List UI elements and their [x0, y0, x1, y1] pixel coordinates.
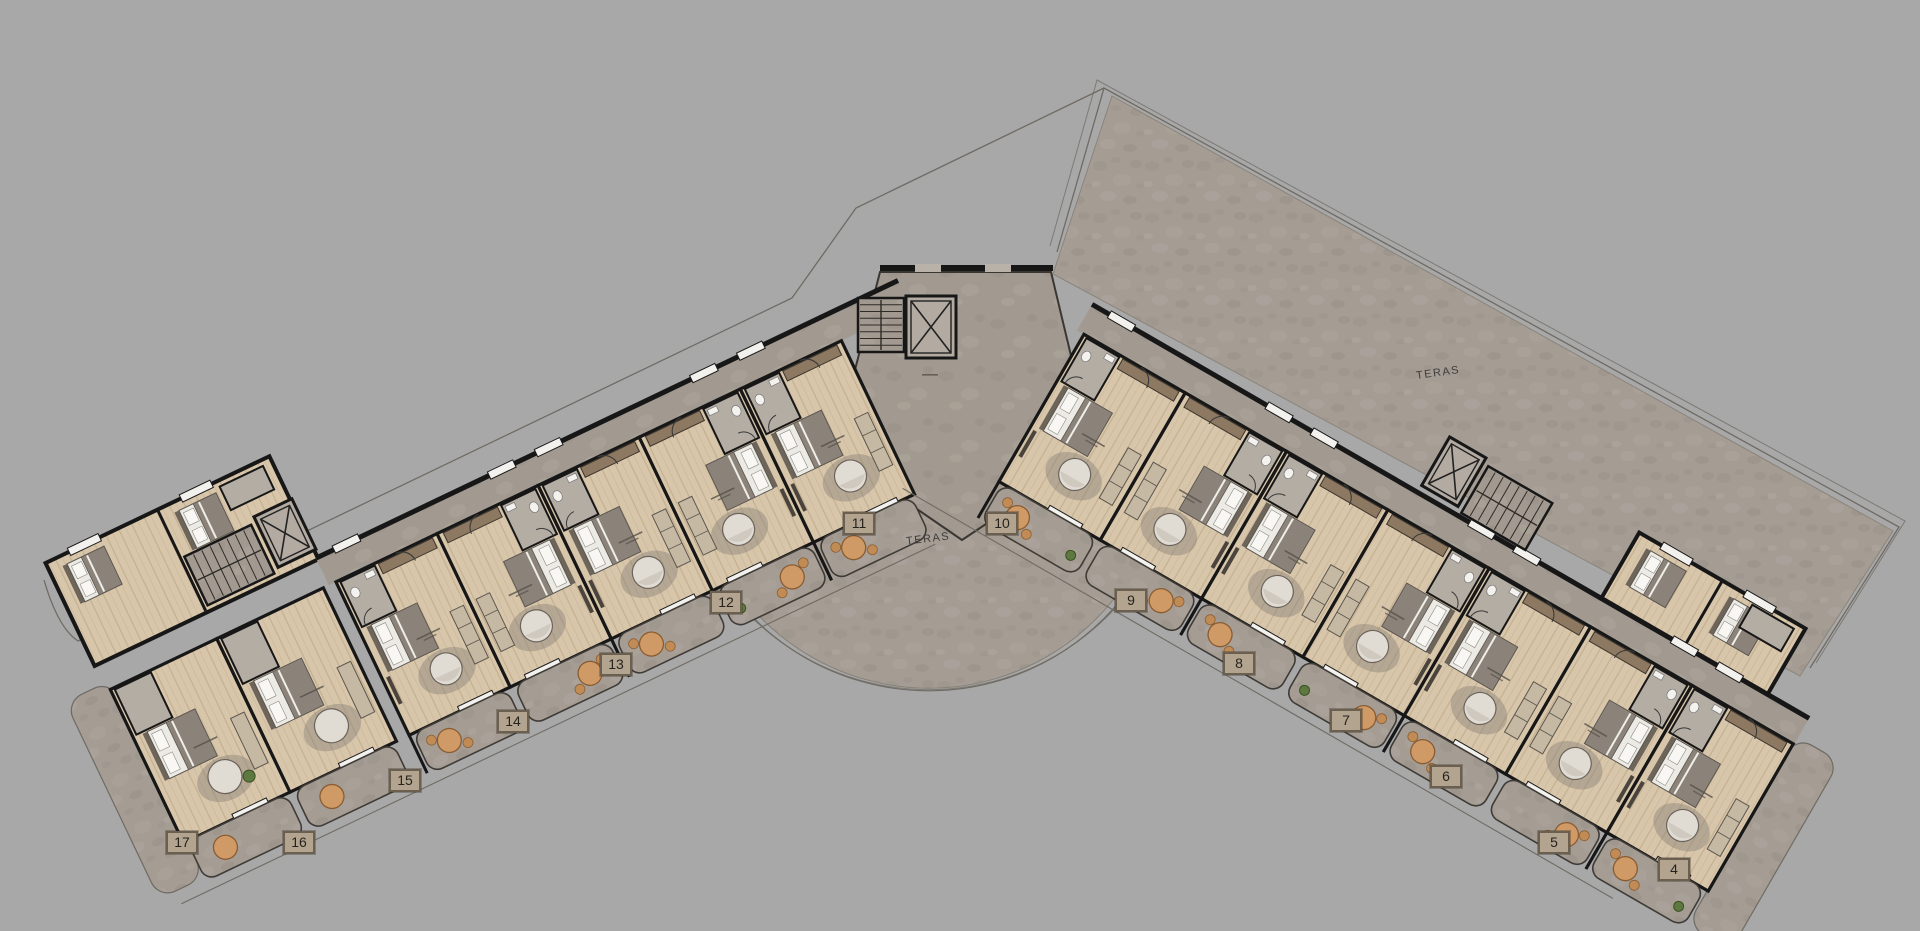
unit-badge-7: 7	[1330, 709, 1362, 732]
unit-badge-13: 13	[600, 653, 632, 676]
unit-badge-17: 17	[166, 831, 198, 854]
unit-badge-16: 16	[283, 831, 315, 854]
wing-left	[6, 176, 1007, 912]
unit-badge-12: 12	[710, 591, 742, 614]
unit-badge-8: 8	[1223, 652, 1255, 675]
unit-badge-9: 9	[1115, 589, 1147, 612]
unit-badge-10: 10	[986, 512, 1018, 535]
unit-badge-4: 4	[1658, 858, 1690, 881]
unit-badge-15: 15	[389, 769, 421, 792]
unit-badge-6: 6	[1430, 765, 1462, 788]
unit-badge-14: 14	[497, 710, 529, 733]
unit-badge-11: 11	[843, 512, 875, 535]
floor-plan	[0, 0, 1920, 931]
floor-plan-canvas: 1716151413121110987654TERASTERAS	[0, 0, 1920, 931]
unit-badge-5: 5	[1538, 831, 1570, 854]
